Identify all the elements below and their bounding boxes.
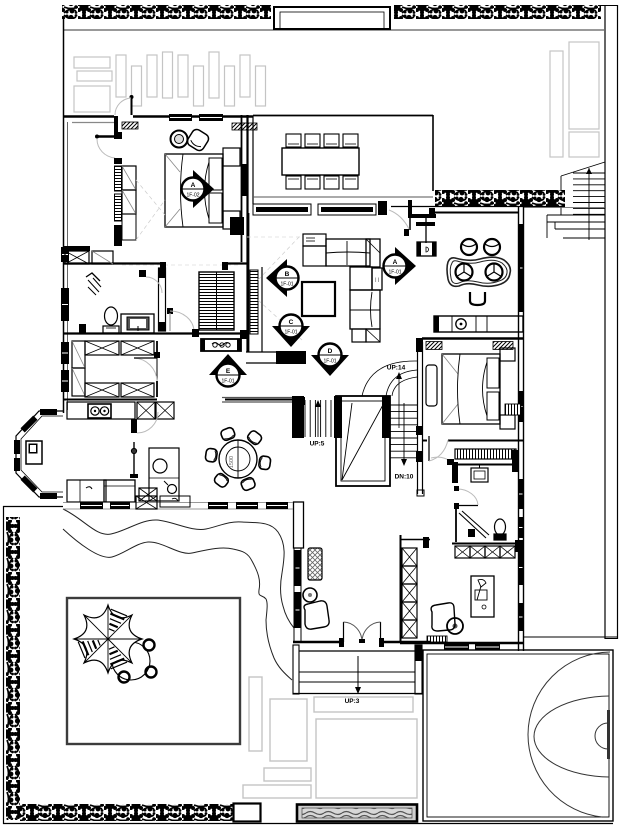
svg-text:C: C	[289, 319, 294, 326]
svg-text:1F-01: 1F-01	[221, 379, 234, 385]
svg-text:UP:5: UP:5	[310, 441, 325, 448]
svg-text:B: B	[285, 271, 290, 278]
svg-text:1F-01: 1F-01	[388, 270, 401, 276]
svg-text:| |: | |	[375, 277, 379, 282]
svg-text:1F-02: 1F-02	[186, 193, 199, 199]
svg-text:D: D	[328, 348, 333, 355]
svg-text:A: A	[393, 259, 398, 266]
svg-text:UP:14: UP:14	[387, 365, 406, 372]
svg-text:1F-01: 1F-01	[280, 282, 293, 288]
svg-text:DN:10: DN:10	[395, 474, 414, 481]
svg-text:1F-01: 1F-01	[323, 359, 336, 365]
svg-text:1500: 1500	[229, 456, 235, 468]
svg-text:A: A	[191, 182, 196, 189]
svg-text:E: E	[226, 368, 231, 375]
svg-text:UP:3: UP:3	[345, 698, 360, 705]
svg-text:1F-01: 1F-01	[284, 330, 297, 336]
